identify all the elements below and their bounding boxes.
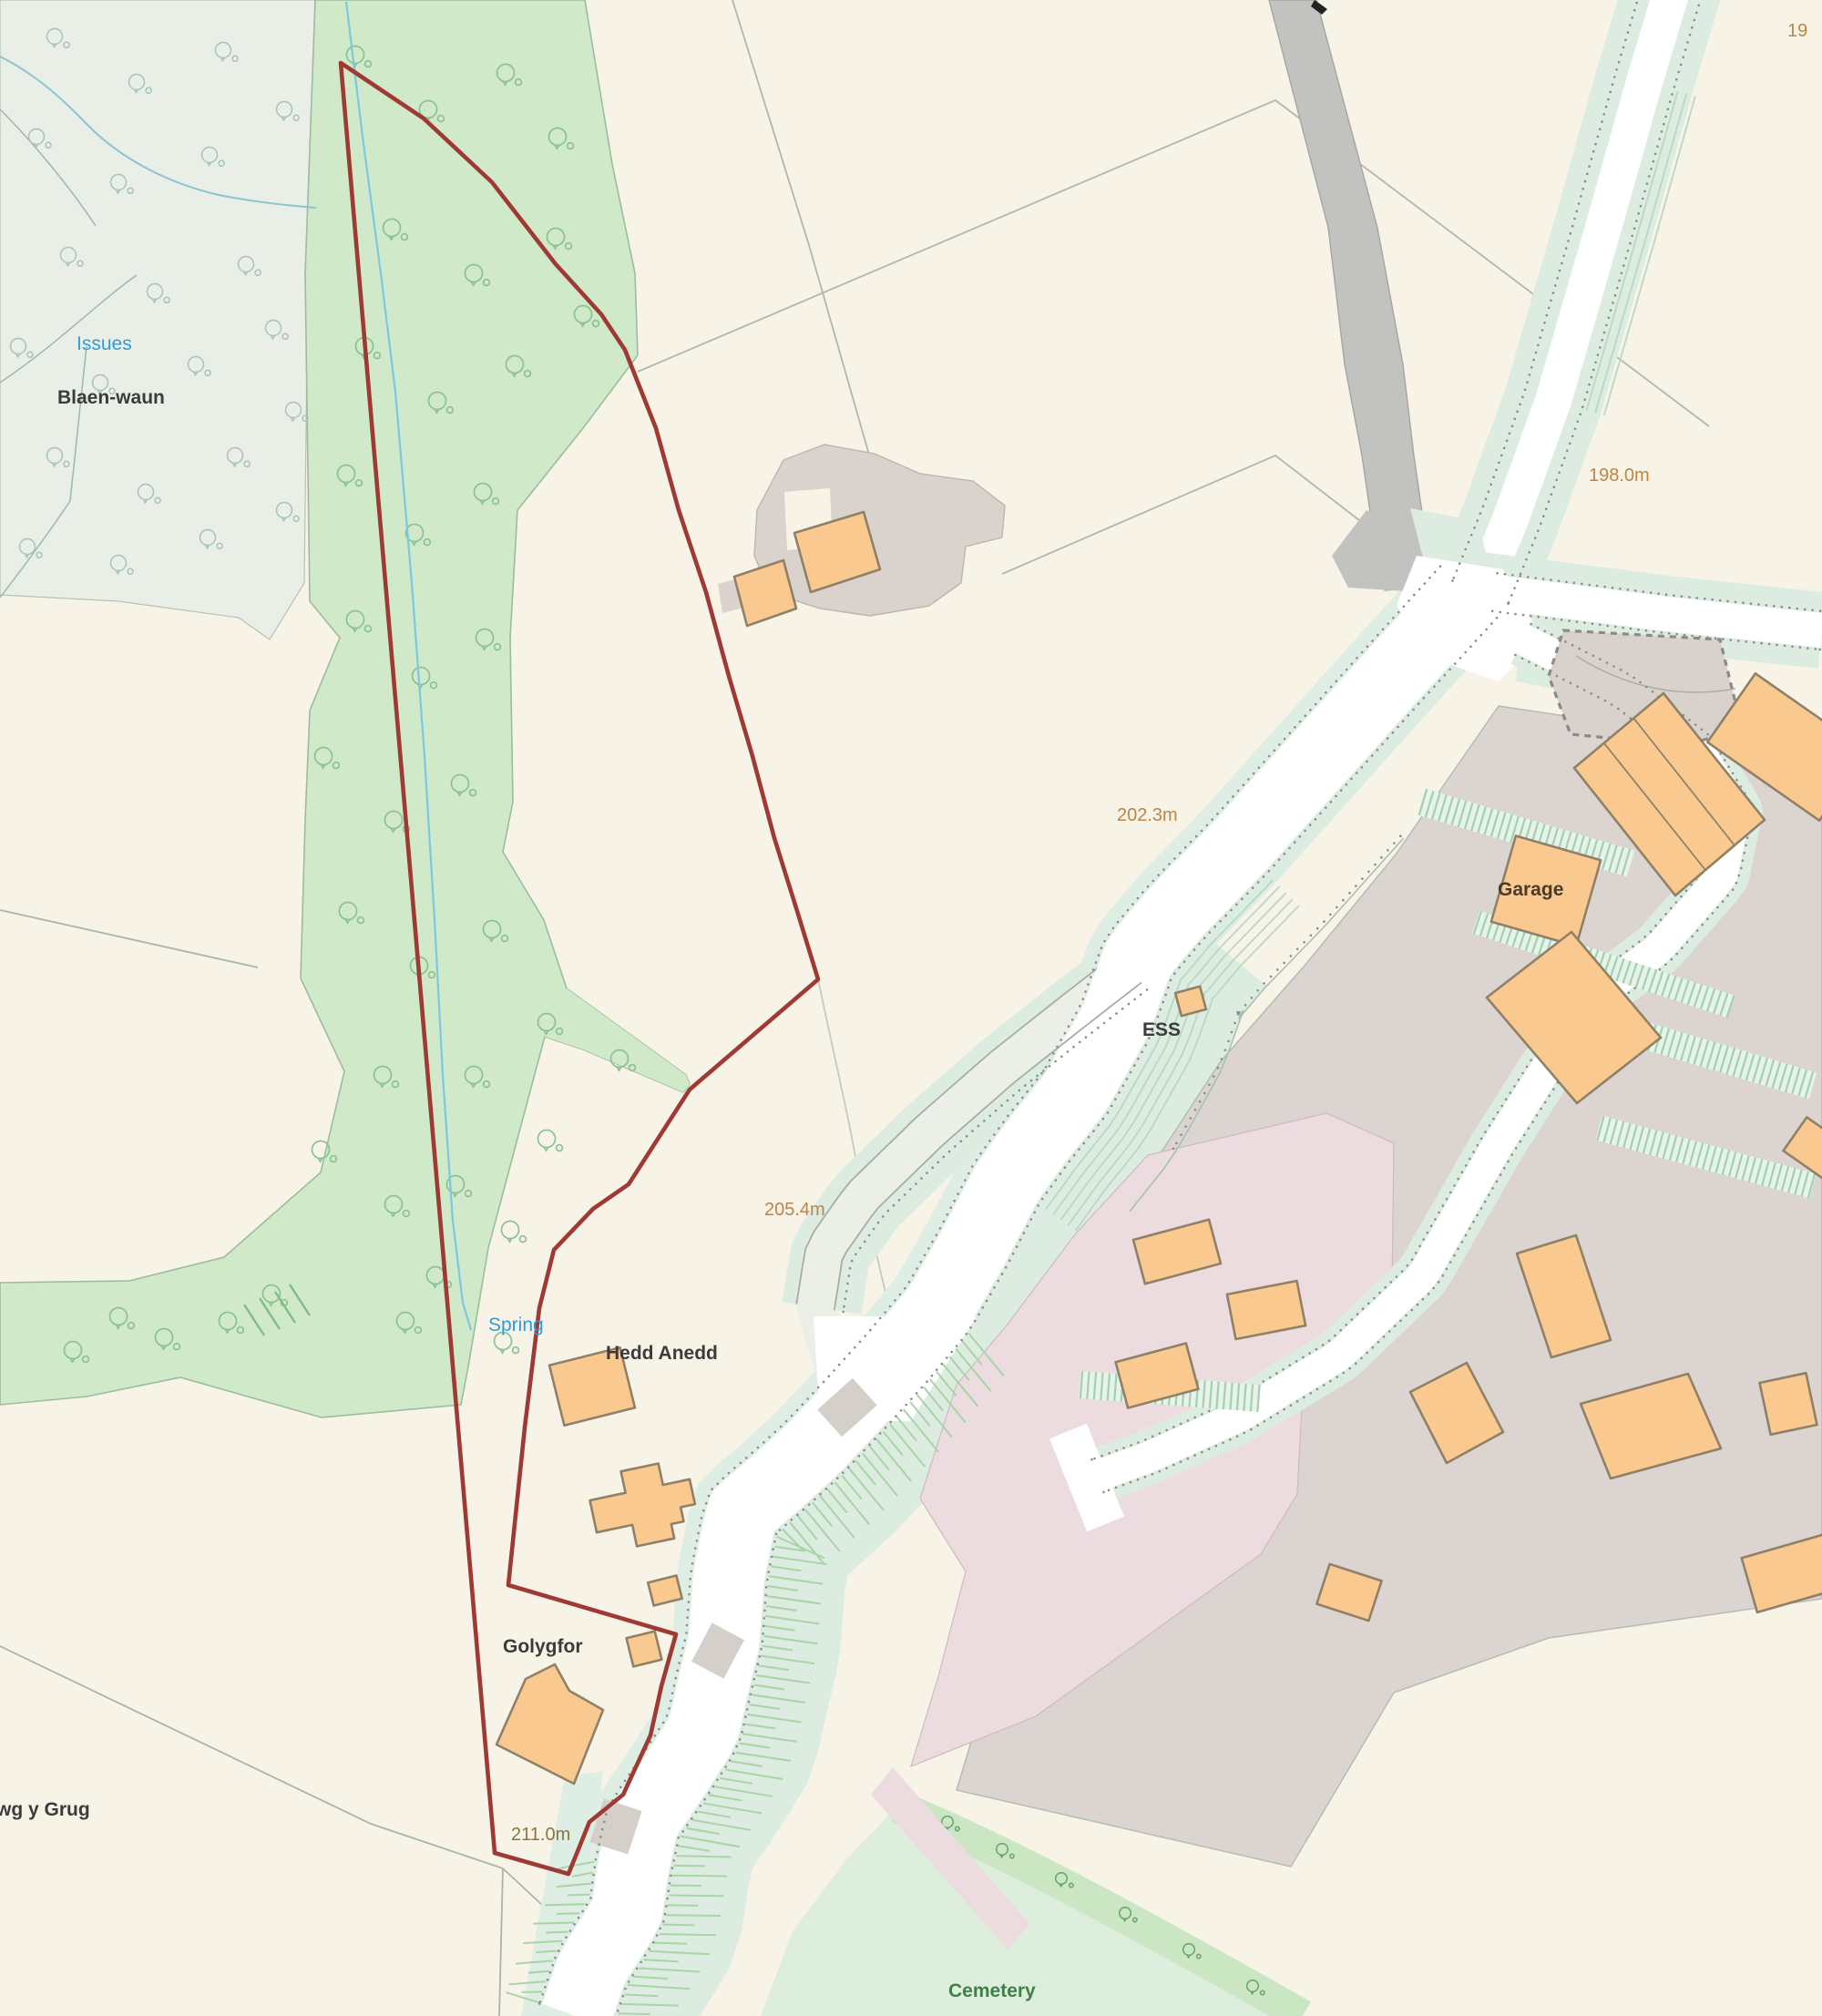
svg-text:Golygfor: Golygfor: [503, 1636, 583, 1657]
svg-text:ESS: ESS: [1142, 1019, 1181, 1040]
svg-text:205.4m: 205.4m: [764, 1200, 825, 1220]
svg-text:Hedd Anedd: Hedd Anedd: [606, 1343, 718, 1364]
svg-text:wg y Grug: wg y Grug: [0, 1799, 90, 1820]
svg-text:198.0m: 198.0m: [1589, 466, 1650, 486]
svg-text:19: 19: [1787, 21, 1807, 41]
svg-text:Issues: Issues: [77, 333, 132, 354]
svg-text:Garage: Garage: [1498, 879, 1563, 900]
svg-text:202.3m: 202.3m: [1117, 805, 1178, 825]
svg-text:Cemetery: Cemetery: [948, 1980, 1036, 2001]
svg-text:211.0m: 211.0m: [511, 1825, 570, 1845]
svg-text:Blaen-waun: Blaen-waun: [57, 387, 165, 408]
svg-text:Spring: Spring: [488, 1315, 544, 1335]
